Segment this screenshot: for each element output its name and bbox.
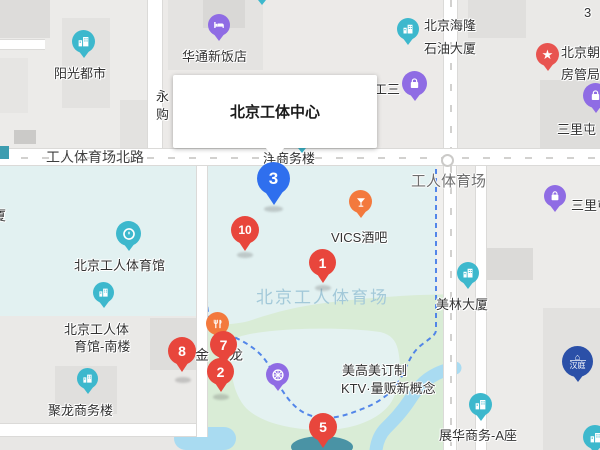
building-icon bbox=[589, 431, 600, 444]
poi-corner-building[interactable] bbox=[583, 425, 600, 449]
shopping-bag-icon bbox=[589, 89, 600, 102]
poi-label: 北京朝阳 bbox=[561, 42, 600, 61]
hanting-text: 汉庭 bbox=[570, 360, 586, 370]
marker-2[interactable]: 2 bbox=[207, 358, 234, 385]
poi-zhanhua[interactable] bbox=[469, 393, 492, 416]
partial-label: 厦 bbox=[0, 205, 6, 224]
poi-ktv[interactable] bbox=[266, 363, 289, 386]
transit-sign bbox=[0, 146, 9, 159]
partial-label: 3 bbox=[584, 5, 591, 20]
marker-8[interactable]: 8 bbox=[168, 337, 196, 365]
info-box-title: 北京工体中心 bbox=[230, 101, 320, 122]
marker-number: 7 bbox=[220, 337, 228, 353]
road-junction bbox=[441, 154, 454, 167]
marker-10[interactable]: 10 bbox=[231, 216, 259, 244]
poi-label: 房管局 bbox=[561, 64, 600, 83]
star-icon: ★ bbox=[542, 48, 554, 61]
poi-label: 工三 bbox=[374, 79, 400, 98]
marker-shadow bbox=[315, 285, 331, 291]
marker-1[interactable]: 1 bbox=[309, 249, 336, 276]
road-bottomleft bbox=[0, 423, 196, 437]
marker-number: 10 bbox=[238, 223, 251, 237]
poi-label: 北京海隆 bbox=[424, 15, 476, 34]
poi-hailong[interactable] bbox=[397, 18, 419, 40]
building-icon bbox=[82, 373, 93, 384]
cocktail-icon bbox=[355, 196, 367, 208]
entertainment-icon bbox=[271, 368, 285, 382]
road-topleft-short bbox=[0, 39, 45, 50]
marker-number: 8 bbox=[178, 343, 186, 359]
poi-yangguang[interactable] bbox=[72, 30, 95, 53]
poi-label: 石油大厦 bbox=[424, 38, 476, 57]
marker-number: 2 bbox=[217, 364, 225, 380]
poi-label: 三里屯 bbox=[557, 119, 596, 138]
poi-huatong[interactable] bbox=[208, 14, 230, 36]
building-icon bbox=[462, 267, 474, 279]
road-mid-street bbox=[196, 166, 208, 437]
marker-shadow bbox=[237, 252, 253, 258]
poi-label: 美高美订制 bbox=[342, 360, 407, 379]
poi-gongsan[interactable] bbox=[402, 71, 427, 96]
poi-julong[interactable] bbox=[77, 368, 98, 389]
building-icon bbox=[402, 23, 414, 35]
partial-label: 购 bbox=[156, 104, 169, 123]
poi-tiyuguan[interactable] bbox=[116, 221, 141, 246]
road-label-east: 工人体育场 bbox=[411, 170, 486, 191]
partial-label: 永 bbox=[156, 86, 169, 105]
poi-hanting[interactable]: ⌂ 汉庭 bbox=[562, 346, 593, 377]
poi-label: 北京工人体育馆 bbox=[74, 255, 165, 274]
poi-label: 三里屯 bbox=[571, 195, 600, 214]
info-box[interactable]: 北京工体中心 bbox=[173, 75, 377, 148]
partial-label: 金 bbox=[195, 345, 209, 365]
building-icon bbox=[77, 35, 90, 48]
clipped-marker-tail-top bbox=[254, 0, 270, 5]
hotel-bed-icon bbox=[213, 19, 225, 31]
marker-5[interactable]: 5 bbox=[309, 413, 337, 441]
poi-label: 展华商务-A座 bbox=[439, 425, 517, 444]
poi-meilin[interactable] bbox=[457, 262, 479, 284]
poi-label: VICS酒吧 bbox=[331, 227, 387, 246]
marker-number: 5 bbox=[319, 419, 327, 435]
stadium-icon bbox=[122, 227, 136, 241]
marker-shadow bbox=[213, 394, 229, 400]
hanting-logo: ⌂ 汉庭 bbox=[570, 354, 586, 370]
shopping-bag-icon bbox=[549, 190, 561, 202]
shopping-bag-icon bbox=[408, 77, 421, 90]
poi-vics[interactable] bbox=[349, 190, 372, 213]
building-icon bbox=[98, 287, 109, 298]
poi-label: 美林大厦 bbox=[436, 294, 488, 313]
marker-number: 3 bbox=[269, 169, 278, 189]
poi-label: 聚龙商务楼 bbox=[48, 400, 113, 419]
poi-label: 阳光都市 bbox=[54, 63, 106, 82]
marker-number: 1 bbox=[319, 255, 327, 271]
map-canvas[interactable]: 工人体育场北路 工人体育场 北京工人体育场 阳光都市 华通新饭店 北京海隆 石油… bbox=[0, 0, 600, 450]
road-label-north: 工人体育场北路 bbox=[46, 147, 144, 167]
marker-shadow bbox=[175, 377, 191, 383]
fork-knife-icon bbox=[212, 318, 224, 330]
building-icon bbox=[474, 398, 487, 411]
poi-label: 华通新饭店 bbox=[182, 46, 247, 65]
marker-3[interactable]: 3 bbox=[257, 162, 290, 195]
road-vertical-topleft bbox=[147, 0, 163, 148]
poi-fangguanju[interactable]: ★ bbox=[536, 43, 559, 66]
poi-nanlou[interactable] bbox=[93, 282, 114, 303]
marker-shadow bbox=[264, 206, 283, 212]
poi-sanlitun-mid[interactable] bbox=[544, 185, 566, 207]
poi-label: 育馆-南楼 bbox=[74, 336, 130, 355]
marker-7[interactable]: 7 bbox=[210, 331, 237, 358]
poi-label: KTV·量贩新概念 bbox=[341, 378, 436, 397]
